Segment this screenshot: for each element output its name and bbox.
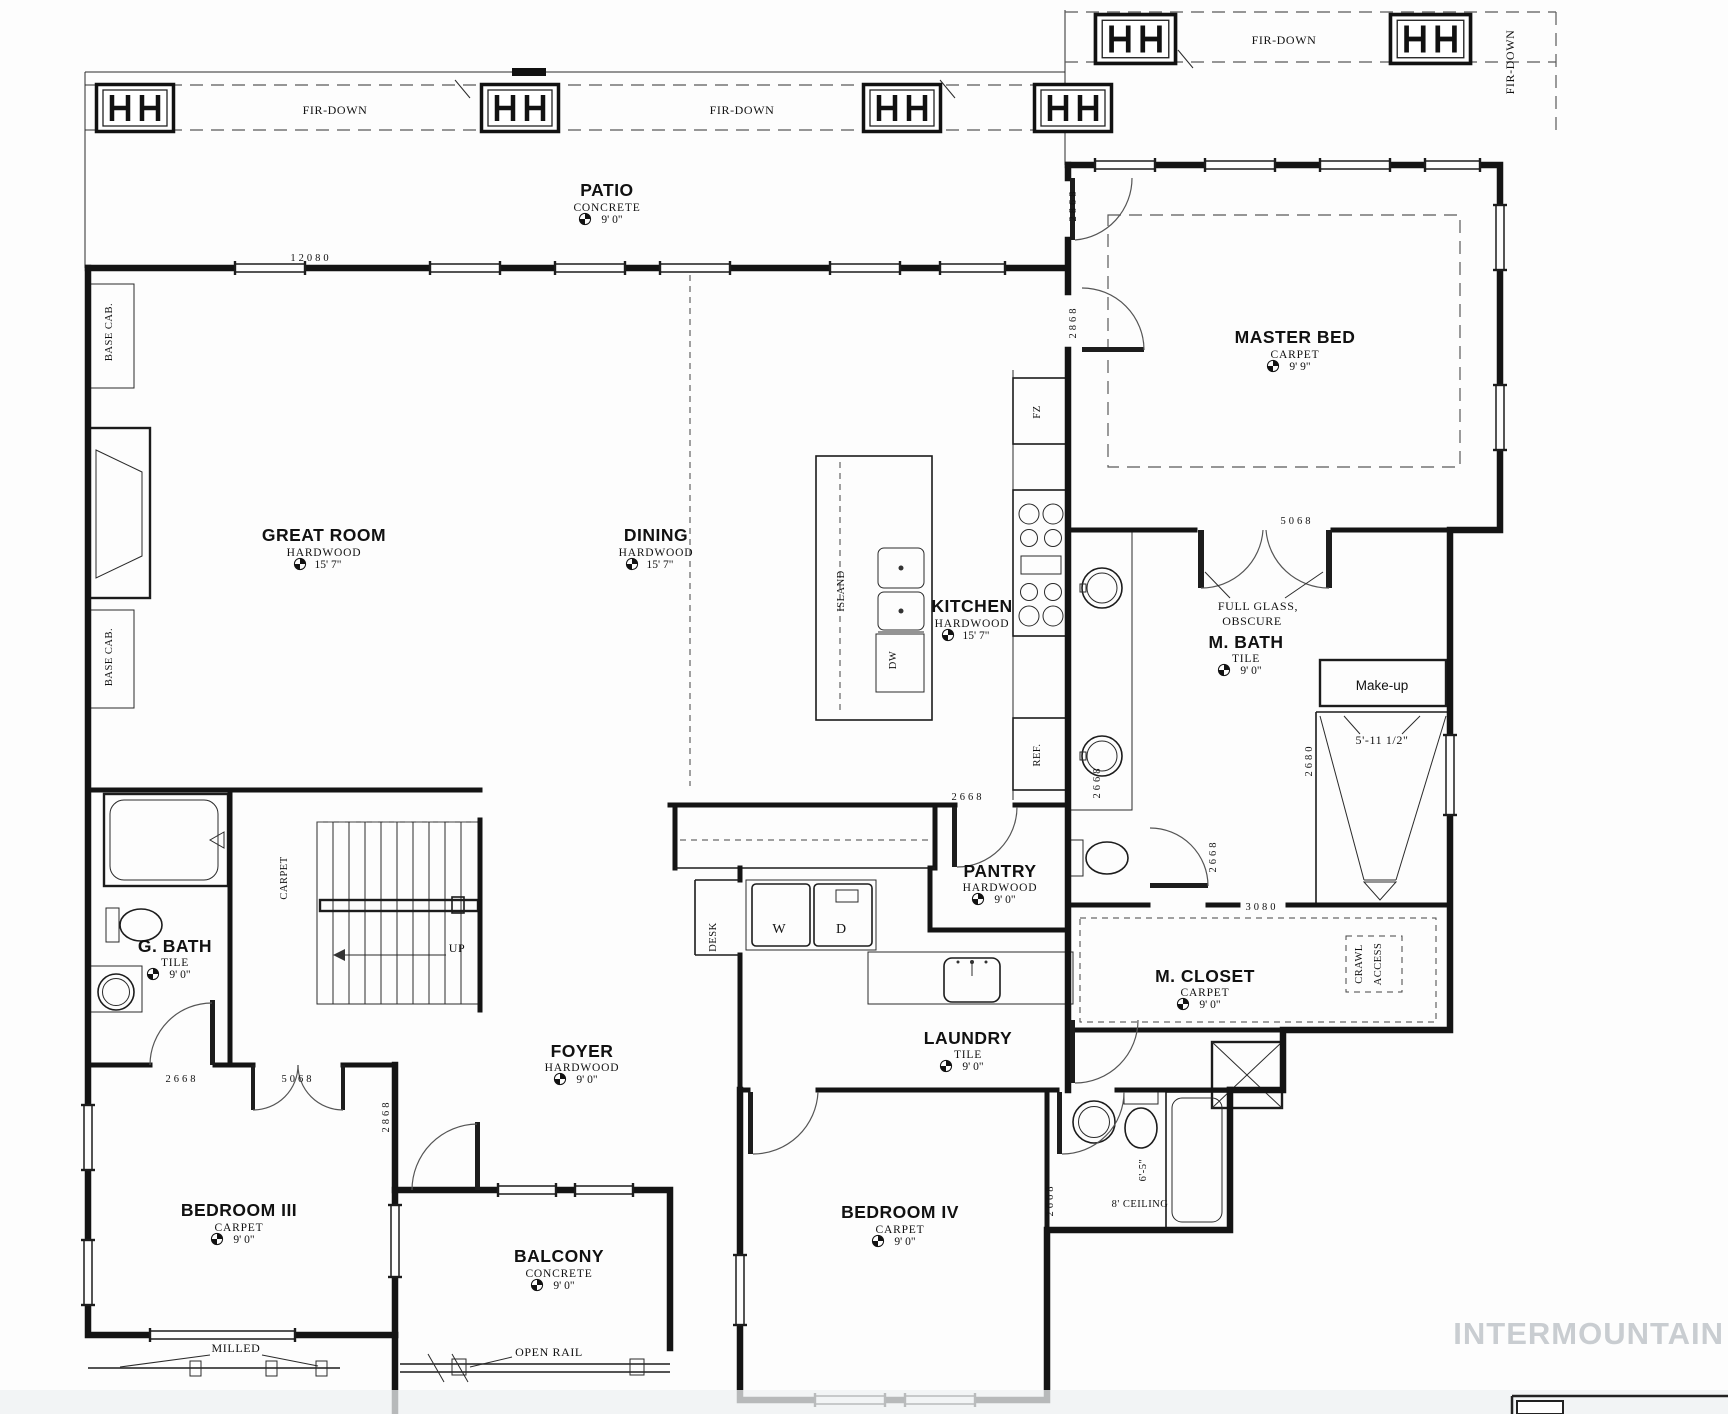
wall-tick — [512, 68, 546, 76]
room-height: 9' 0" — [576, 1074, 597, 1086]
room-material: CONCRETE — [573, 202, 640, 214]
ceiling-height-icon — [626, 558, 637, 569]
vanity-sink — [98, 974, 134, 1010]
kitchen-counter-east — [1013, 370, 1068, 800]
door — [1082, 288, 1144, 352]
island-label: ISLAND — [836, 570, 847, 612]
room-material: HARDWOOD — [287, 547, 362, 559]
dimension-text: 2868 — [381, 1100, 392, 1133]
window — [1095, 158, 1155, 172]
room-height: 15' 7" — [647, 559, 674, 571]
column-symbol — [864, 85, 941, 132]
room-name: BEDROOM IV — [841, 1202, 959, 1222]
floor-plan-sheet: FIR-DOWN FIR-DOWN FIR-DOWN FIR-DOWN BASE… — [0, 0, 1728, 1414]
dimension-text: 5068 — [1281, 516, 1314, 527]
room-name: FOYER — [551, 1041, 614, 1061]
room-label-laundry: LAUNDRY TILE 9' 0" — [924, 1028, 1012, 1073]
window — [1205, 158, 1275, 172]
ceiling-height-icon — [1177, 998, 1188, 1009]
dimension-text: 5'-11 1/2" — [1356, 733, 1409, 747]
toilet-icon — [1125, 1108, 1157, 1148]
window — [150, 1328, 295, 1342]
dimension-text: 2868 — [1068, 189, 1079, 222]
room-name: MASTER BED — [1235, 327, 1356, 347]
room-label-m-bath: FULL GLASS, OBSCURE M. BATH TILE 9' 0" — [1208, 599, 1298, 677]
room-material: HARDWOOD — [935, 618, 1010, 630]
room-label-dining: DINING HARDWOOD 15' 7" — [619, 525, 694, 571]
room-height: 9' 0" — [894, 1236, 915, 1248]
room-material: CARPET — [1271, 349, 1320, 361]
attic-hatch — [1212, 1042, 1282, 1108]
dishwasher-box — [876, 634, 924, 692]
dimension-text: 2680 — [1304, 744, 1315, 777]
column-symbol — [1390, 15, 1470, 64]
fir-down-band-patio — [85, 10, 1065, 268]
crawl-access-label: ACCESS — [1373, 943, 1384, 986]
gbath-fixtures — [90, 794, 228, 1012]
room-label-pantry: PANTRY HARDWOOD 9' 0" — [963, 861, 1038, 906]
fireplace — [88, 428, 150, 598]
vanity-sink — [1073, 1101, 1115, 1143]
room-material: CONCRETE — [525, 1268, 592, 1280]
ceiling-height-icon — [579, 213, 590, 224]
stairs — [317, 822, 479, 1004]
room-name: LAUNDRY — [924, 1028, 1012, 1048]
fir-down-label: FIR-DOWN — [710, 103, 775, 117]
room-height: 9' 0" — [169, 969, 190, 981]
room-height: 9' 0" — [1199, 999, 1220, 1011]
room-material: HARDWOOD — [963, 882, 1038, 894]
ceiling-height-icon — [972, 893, 983, 904]
bathtub — [1166, 1092, 1228, 1228]
room-label-balcony: BALCONY CONCRETE 9' 0" — [514, 1246, 604, 1292]
room-name: GREAT ROOM — [262, 525, 386, 545]
ceiling-note: 8' CEILING — [1112, 1199, 1169, 1210]
dimension-text: 5068 — [282, 1074, 315, 1085]
dimension-text: 2668 — [1045, 1184, 1056, 1217]
window — [660, 261, 730, 275]
milled-label: MILLED — [212, 1341, 261, 1355]
dimension-text: 2668 — [952, 792, 985, 803]
ceiling-height-icon — [940, 1060, 951, 1071]
stair-handrail — [320, 900, 478, 911]
dimension-text: 2668 — [1092, 766, 1103, 799]
room-label-bedroom-4: BEDROOM IV CARPET 9' 0" — [841, 1202, 959, 1248]
ceiling-height-icon — [531, 1279, 542, 1290]
laundry-counter — [868, 952, 1073, 1004]
door-double-glass — [1198, 530, 1332, 598]
room-height: 9' 0" — [553, 1280, 574, 1292]
window — [1320, 158, 1390, 172]
column-symbol — [1095, 15, 1175, 64]
ceiling-height-icon — [872, 1235, 883, 1246]
dishwasher-label: DW — [888, 651, 899, 670]
room-material: HARDWOOD — [619, 547, 694, 559]
ceiling-height-icon — [211, 1233, 222, 1244]
stair-direction-arrow — [333, 949, 345, 961]
room-material: CARPET — [876, 1224, 925, 1236]
open-rail-label: OPEN RAIL — [515, 1345, 583, 1359]
shower-drain-icon — [1364, 882, 1396, 900]
room-height: 15' 7" — [315, 559, 342, 571]
room-label-bedroom-3: BEDROOM III CARPET 9' 0" — [181, 1200, 297, 1246]
room-height: 9' 9" — [1289, 361, 1310, 373]
room-label-patio: PATIO CONCRETE 9' 0" — [573, 180, 640, 226]
stairs-carpet-label: CARPET — [279, 856, 290, 899]
room-name: BALCONY — [514, 1246, 604, 1266]
room-height: 9' 0" — [962, 1061, 983, 1073]
full-glass-note: OBSCURE — [1222, 614, 1282, 628]
room-height: 9' 0" — [994, 894, 1015, 906]
window — [498, 1183, 556, 1197]
page-edge-shadow — [0, 1390, 1728, 1414]
room-height: 9' 0" — [1240, 665, 1261, 677]
ceiling-height-icon — [1218, 664, 1229, 675]
room-material: CARPET — [215, 1222, 264, 1234]
door — [150, 1000, 215, 1065]
door — [1150, 828, 1208, 888]
window — [1493, 205, 1507, 270]
ceiling-height-icon — [942, 629, 953, 640]
window — [81, 1240, 95, 1305]
room-height: 9' 0" — [601, 214, 622, 226]
freezer-label: FZ — [1032, 405, 1043, 418]
room-label-kitchen: KITCHEN HARDWOOD 15' 7" — [931, 596, 1012, 642]
room-height: 15' 7" — [963, 630, 990, 642]
window — [81, 1105, 95, 1170]
dimension-text: 2668 — [166, 1074, 199, 1085]
door — [412, 1122, 480, 1190]
dryer-label: D — [836, 922, 846, 937]
room-label-great-room: GREAT ROOM HARDWOOD 15' 7" — [262, 525, 386, 571]
window — [1425, 158, 1480, 172]
room-name: G. BATH — [138, 936, 212, 956]
ceiling-height-icon — [294, 558, 305, 569]
crawl-access-label: CRAWL — [1354, 944, 1365, 984]
washer-label: W — [772, 922, 786, 937]
window — [388, 1205, 402, 1277]
column-symbol — [97, 85, 174, 132]
desk-label: DESK — [708, 922, 719, 951]
window — [555, 261, 625, 275]
door-double — [253, 1065, 343, 1110]
dimension-texts: 12080 2868 2868 2868 2668 2668 2668 2668… — [166, 189, 1421, 1217]
room-height: 9' 0" — [233, 1234, 254, 1246]
ceiling-height-icon — [147, 968, 158, 979]
dimension-text: 6'-5" — [1138, 1159, 1149, 1182]
window — [575, 1183, 633, 1197]
room-label-g-bath: G. BATH TILE 9' 0" — [138, 936, 212, 981]
toilet-icon — [1070, 840, 1128, 876]
base-cab-label: BASE CAB. — [104, 628, 115, 686]
room-name: BEDROOM III — [181, 1200, 297, 1220]
room-name: PATIO — [580, 180, 633, 200]
window — [830, 261, 900, 275]
faucet-icon — [210, 832, 224, 848]
fir-down-label: FIR-DOWN — [1503, 30, 1517, 95]
room-name: DINING — [624, 525, 688, 545]
room-material: TILE — [954, 1049, 982, 1061]
window — [1443, 735, 1457, 815]
window — [733, 1255, 747, 1325]
watermark: INTERMOUNTAIN — [1453, 1316, 1724, 1351]
base-cab-label: BASE CAB. — [104, 303, 115, 361]
room-material: TILE — [161, 957, 189, 969]
room-name: M. CLOSET — [1155, 966, 1255, 986]
dimension-text: 2868 — [1068, 306, 1079, 339]
column-symbol — [1035, 85, 1112, 132]
door — [1070, 178, 1132, 240]
room-material: CARPET — [1181, 987, 1230, 999]
window — [1493, 385, 1507, 450]
ceiling-height-icon — [554, 1073, 565, 1084]
dimension-text: 2668 — [1208, 840, 1219, 873]
dimension-text: 12080 — [290, 253, 331, 264]
floor-plan-drawing: FIR-DOWN FIR-DOWN FIR-DOWN FIR-DOWN BASE… — [0, 0, 1728, 1414]
ceiling-height-icon — [1267, 360, 1278, 371]
washer-dryer — [746, 880, 876, 950]
refrigerator-label: REF. — [1032, 743, 1043, 766]
window — [430, 261, 500, 275]
makeup-label: Make-up — [1356, 678, 1409, 693]
full-glass-note: FULL GLASS, — [1218, 599, 1298, 613]
window — [940, 261, 1005, 275]
room-material: HARDWOOD — [545, 1062, 620, 1074]
fir-down-label: FIR-DOWN — [1252, 33, 1317, 47]
room-label-foyer: FOYER HARDWOOD 9' 0" — [545, 1041, 620, 1086]
room-name: M. BATH — [1208, 632, 1283, 652]
room-name: KITCHEN — [931, 596, 1012, 616]
door — [952, 807, 1017, 867]
fir-down-label: FIR-DOWN — [303, 103, 368, 117]
room-name: PANTRY — [964, 861, 1037, 881]
room-material: TILE — [1232, 653, 1260, 665]
dimension-text: 3080 — [1246, 902, 1279, 913]
column-symbol — [482, 85, 559, 132]
up-label: UP — [449, 941, 466, 955]
kitchen-island — [816, 456, 932, 720]
door — [748, 1092, 818, 1154]
room-label-m-closet: M. CLOSET CARPET 9' 0" — [1155, 966, 1255, 1011]
room-label-master-bed: MASTER BED CARPET 9' 9" — [1235, 327, 1356, 373]
milled-rail — [88, 1355, 340, 1376]
